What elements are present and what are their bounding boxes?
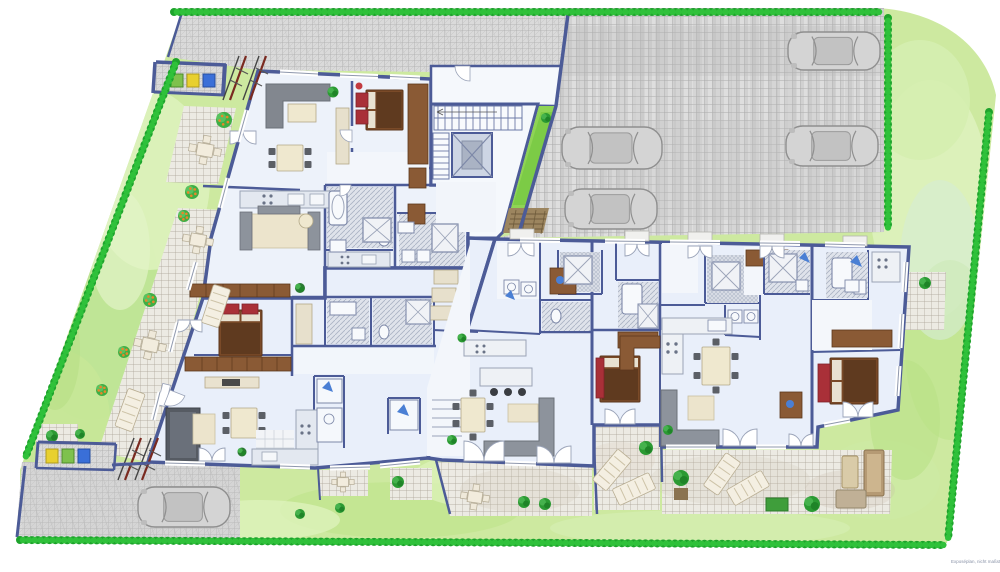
svg-text:Exposéplan, nicht maßstäblich: Exposéplan, nicht maßstäblich [951, 559, 1000, 564]
